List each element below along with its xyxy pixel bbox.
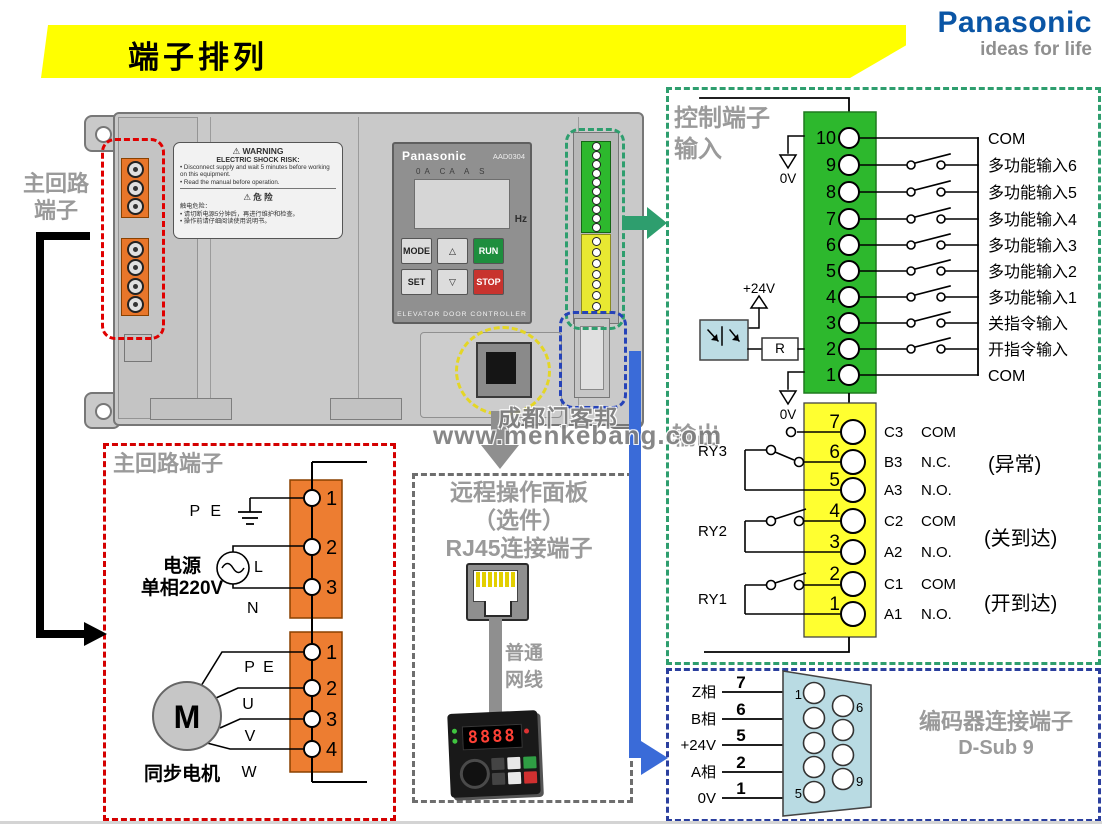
relay-label: RY2 xyxy=(698,523,727,540)
output-group-label: (关到达) xyxy=(984,527,1057,550)
output-code: A3 xyxy=(884,482,902,499)
rj45-notch xyxy=(484,601,512,617)
power-terminal-num: 1 xyxy=(326,488,337,510)
output-terminal-num: 7 xyxy=(829,412,840,433)
output-code: C1 xyxy=(884,576,903,593)
encoder-pin-label: B相 xyxy=(691,711,716,728)
output-type: N.C. xyxy=(921,454,951,471)
encoder-title: 编码器连接端子 D-Sub 9 xyxy=(900,708,1092,762)
power-terminal-num: 3 xyxy=(326,577,337,599)
led-indicator xyxy=(452,729,457,734)
output-code: B3 xyxy=(884,454,902,471)
ov-label: 0V xyxy=(780,407,797,422)
input-terminal-num: 10 xyxy=(816,128,836,148)
encoder-pin-num: 2 xyxy=(736,753,745,772)
remote-down-button xyxy=(508,772,522,785)
input-terminal-num: 3 xyxy=(826,313,836,333)
line-l-label: L xyxy=(254,559,263,576)
main-circuit-title: 主回路端子 xyxy=(113,446,223,478)
input-label: COM xyxy=(988,368,1025,385)
motor-wire-label: W xyxy=(241,764,257,781)
led-indicator xyxy=(524,728,529,733)
encoder-arrow xyxy=(629,351,668,775)
output-code: C2 xyxy=(884,513,903,530)
output-code: C3 xyxy=(884,424,903,441)
remote-buttons xyxy=(491,756,537,785)
relay-label: RY1 xyxy=(698,591,727,608)
motor-letter: M xyxy=(174,699,201,735)
main-terminals-callout: 主回路 端子 xyxy=(8,170,104,224)
resistor-label: R xyxy=(775,341,785,356)
input-terminal-num: 2 xyxy=(826,339,836,359)
remote-up-button xyxy=(507,757,521,770)
input-terminal-num: 6 xyxy=(826,235,836,255)
remote-display: 8888 xyxy=(462,724,523,751)
watermark-line2: www.menkebang.com xyxy=(433,420,722,451)
encoder-pin-label: Z相 xyxy=(692,684,716,701)
cable-label: 普通 网线 xyxy=(505,640,543,694)
page-bottom-rule xyxy=(0,821,1102,824)
control-input-title: 控制端子 输入 xyxy=(674,103,770,165)
output-type: N.O. xyxy=(921,606,952,623)
remote-panel-title: 远程操作面板 （选件） RJ45连接端子 xyxy=(414,478,624,562)
rj45-pins xyxy=(473,570,518,602)
rj45-pin xyxy=(494,572,498,587)
output-type: N.O. xyxy=(921,482,952,499)
rj45-pin xyxy=(505,572,509,587)
remote-stop-button xyxy=(524,771,538,784)
input-label: 多功能输入5 xyxy=(988,184,1077,202)
remote-knob xyxy=(459,758,490,789)
input-label: COM xyxy=(988,131,1025,148)
motor-wire-label: P E xyxy=(244,659,276,676)
rj45-pin xyxy=(511,572,515,587)
dsub-corner-num: 9 xyxy=(856,774,863,789)
network-cable xyxy=(489,617,502,713)
motor-terminal-num: 2 xyxy=(326,678,337,700)
remote-button xyxy=(492,773,506,786)
line-n-label: N xyxy=(247,600,259,617)
pe-label: P E xyxy=(190,503,225,520)
power-label: 电源 xyxy=(163,554,201,577)
encoder-diagram: Z相 B相 +24V A相 0V 7 6 5 2 1 1 6 5 9 xyxy=(681,671,871,816)
dsub-corner-num: 1 xyxy=(795,687,802,702)
remote-button xyxy=(491,758,505,771)
input-label: 关指令输入 xyxy=(988,315,1068,333)
input-terminal-num: 4 xyxy=(826,287,836,307)
output-terminal-num: 1 xyxy=(829,594,840,615)
encoder-pin-label: +24V xyxy=(681,737,716,754)
output-code: A2 xyxy=(884,544,902,561)
output-terminal-num: 2 xyxy=(829,564,840,585)
input-terminal-num: 9 xyxy=(826,155,836,175)
plus24-label: +24V xyxy=(743,281,775,296)
control-arrow xyxy=(622,207,667,239)
output-terminal-num: 5 xyxy=(829,470,840,491)
remote-operation-panel: 8888 xyxy=(447,710,541,798)
output-group-label: (开到达) xyxy=(984,592,1057,615)
slide: 端子排列 Panasonic ideas for life ⚠ WARNING … xyxy=(0,0,1102,830)
input-terminal-num: 5 xyxy=(826,261,836,281)
input-terminal-num: 7 xyxy=(826,209,836,229)
input-label: 多功能输入2 xyxy=(988,263,1077,281)
dsub-corner-num: 5 xyxy=(795,786,802,801)
output-terminal-num: 3 xyxy=(829,532,840,553)
output-group-label: (异常) xyxy=(988,453,1041,476)
rj45-pin xyxy=(476,572,480,587)
motor-terminal-num: 4 xyxy=(326,739,337,761)
dsub-corner-num: 6 xyxy=(856,700,863,715)
output-terminal-num: 4 xyxy=(829,501,840,522)
motor-terminal-num: 3 xyxy=(326,709,337,731)
rj45-pin xyxy=(499,572,503,587)
encoder-pin-num: 1 xyxy=(736,779,745,798)
encoder-pin-num: 6 xyxy=(736,700,745,719)
output-code: A1 xyxy=(884,606,902,623)
output-type: COM xyxy=(921,576,956,593)
rj45-pin xyxy=(482,572,486,587)
output-type: COM xyxy=(921,424,956,441)
input-label: 多功能输入3 xyxy=(988,237,1077,255)
input-label: 多功能输入1 xyxy=(988,289,1077,307)
motor-name: 同步电机 xyxy=(144,762,220,785)
main-circuit-diagram: P E L N 电源 单相220V 1 2 3 M 同步电机 P xyxy=(141,462,367,785)
input-terminal-num: 8 xyxy=(826,182,836,202)
input-label: 多功能输入6 xyxy=(988,157,1077,175)
led-indicator xyxy=(452,739,457,744)
rj45-pin xyxy=(488,572,492,587)
motor-terminal-num: 1 xyxy=(326,642,337,664)
motor-wire-label: V xyxy=(245,728,256,745)
motor-wire-label: U xyxy=(242,696,254,713)
main-circuit-pointer-arrow xyxy=(40,236,107,646)
input-terminal-num: 1 xyxy=(826,365,836,385)
encoder-pin-label: A相 xyxy=(691,764,716,781)
power-voltage-label: 单相220V xyxy=(141,576,224,599)
encoder-pin-num: 7 xyxy=(736,673,745,692)
encoder-pin-num: 5 xyxy=(736,726,745,745)
ov-label: 0V xyxy=(780,171,797,186)
power-terminal-num: 2 xyxy=(326,537,337,559)
output-type: COM xyxy=(921,513,956,530)
encoder-pin-label: 0V xyxy=(698,790,716,807)
output-terminal-num: 6 xyxy=(829,442,840,463)
output-diagram: 7 6 5 4 3 2 1 C3 COM B3 N.C. A3 N.O. C2 … xyxy=(698,393,1057,652)
input-label: 多功能输入4 xyxy=(988,211,1077,229)
output-type: N.O. xyxy=(921,544,952,561)
input-label: 开指令输入 xyxy=(988,341,1068,359)
remote-run-button xyxy=(523,756,537,769)
